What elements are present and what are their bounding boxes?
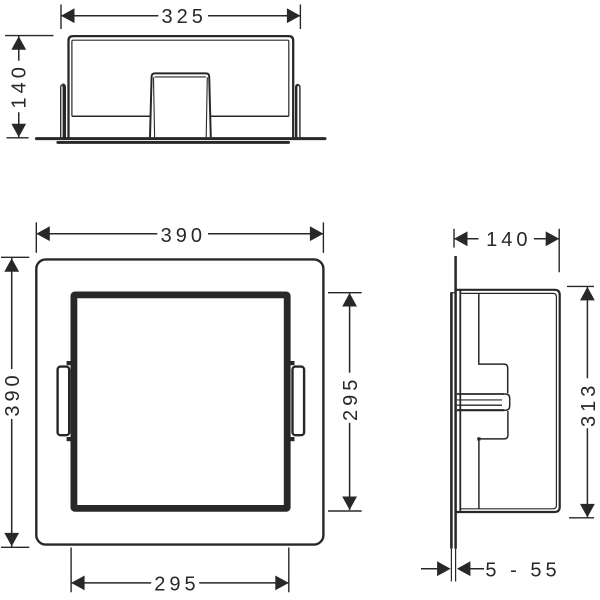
svg-text:295: 295 xyxy=(154,574,199,596)
svg-text:325: 325 xyxy=(162,6,207,28)
svg-text:140: 140 xyxy=(9,63,31,108)
svg-text:390: 390 xyxy=(2,371,24,416)
svg-text:390: 390 xyxy=(161,225,206,247)
svg-text:5 - 55: 5 - 55 xyxy=(485,559,560,581)
svg-text:295: 295 xyxy=(340,376,362,421)
svg-text:140: 140 xyxy=(486,229,531,251)
svg-text:313: 313 xyxy=(578,382,600,427)
